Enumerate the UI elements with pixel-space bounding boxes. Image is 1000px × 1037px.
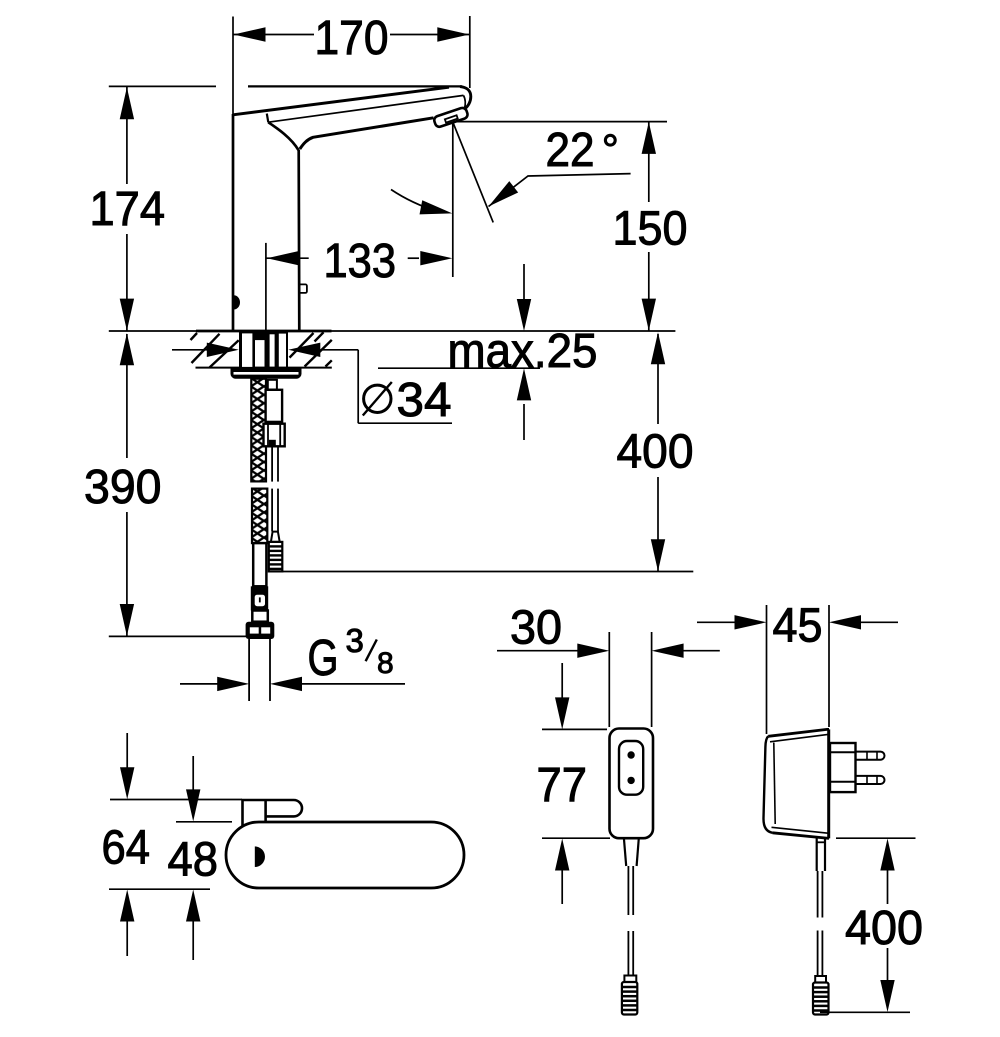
svg-text:G: G: [308, 629, 339, 686]
svg-text:max.25: max.25: [448, 325, 598, 378]
svg-text:150: 150: [613, 203, 688, 256]
svg-text:170: 170: [315, 12, 389, 65]
svg-text:400: 400: [845, 902, 923, 955]
svg-text:30: 30: [510, 602, 562, 655]
svg-text:8: 8: [377, 647, 394, 680]
svg-text:390: 390: [84, 461, 162, 514]
svg-text:77: 77: [537, 759, 588, 812]
svg-text:133: 133: [324, 235, 397, 288]
svg-text:3: 3: [346, 622, 364, 659]
svg-text:48: 48: [168, 834, 219, 887]
svg-text:64: 64: [102, 822, 151, 875]
svg-text:400: 400: [617, 425, 694, 478]
svg-text:174: 174: [90, 183, 166, 236]
svg-text:22: 22: [546, 124, 595, 177]
svg-text:45: 45: [773, 600, 823, 653]
svg-text:34: 34: [397, 374, 452, 427]
